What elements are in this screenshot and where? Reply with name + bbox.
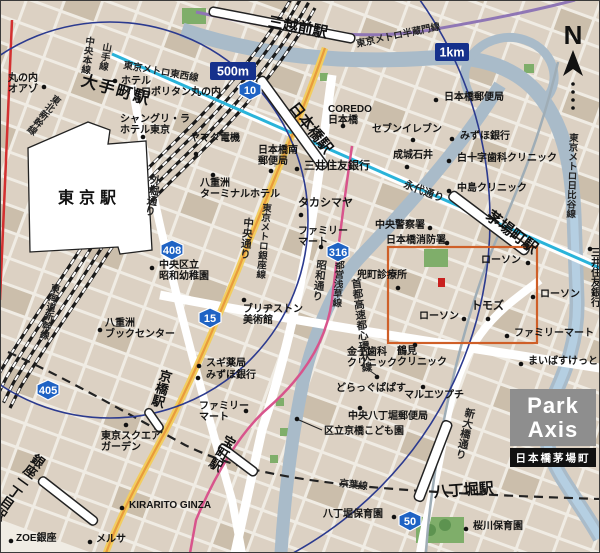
poi-label: スギ薬局 xyxy=(206,356,246,369)
poi-dot xyxy=(505,334,510,339)
poi-dot xyxy=(197,364,202,369)
poi-label: ZOE銀座 xyxy=(16,531,57,544)
park-area xyxy=(320,73,328,81)
poi-dot xyxy=(434,98,439,103)
poi-label: メルサ xyxy=(96,533,126,545)
poi-dot xyxy=(124,423,129,428)
poi-dot xyxy=(194,152,199,157)
poi-dot xyxy=(392,515,397,520)
poi-dot xyxy=(88,540,93,545)
logo-line1: Park xyxy=(527,393,579,418)
logo-caption: 日本橋茅場町 xyxy=(516,452,591,465)
poi-label: 兜町診療所 xyxy=(357,268,407,281)
poi-dot xyxy=(519,362,524,367)
poi-label: 三井住友銀行 xyxy=(304,158,370,172)
park-area xyxy=(270,455,278,463)
poi-label: みずほ銀行 xyxy=(460,129,510,142)
poi-label: 白十字歯科クリニック xyxy=(457,151,557,164)
poi-label: 桜川保育園 xyxy=(473,519,523,532)
poi-label: トモズ xyxy=(471,298,504,312)
north-label: N xyxy=(564,20,583,50)
poi-dot xyxy=(42,85,47,90)
north-arrow-dot xyxy=(571,82,575,86)
poi-dot xyxy=(464,527,469,532)
poi-label: 中央八丁堀郵便局 xyxy=(348,409,428,422)
poi-dot xyxy=(526,261,531,266)
route-shield-number: 316 xyxy=(329,247,347,259)
tokyo-station-building xyxy=(28,122,152,254)
poi-dot xyxy=(486,317,491,322)
property-marker xyxy=(438,278,445,287)
route-shield-number: 15 xyxy=(204,313,216,325)
park-area xyxy=(182,8,206,24)
poi-label: 三井住友銀行 xyxy=(590,247,600,309)
poi-label: みずほ銀行 xyxy=(206,368,256,381)
poi-dot xyxy=(411,138,416,143)
poi-label: 日本橋郵便局 xyxy=(444,90,504,103)
logo-line2: Axis xyxy=(528,417,578,442)
station-label-tokyo: 東京駅 xyxy=(58,188,121,207)
poi-label: ファミリーマート xyxy=(514,327,594,339)
scale-500m-text: 500m xyxy=(217,65,249,79)
poi-dot xyxy=(150,266,155,271)
poi-label: 八丁堀保育園 xyxy=(322,507,383,520)
park-area xyxy=(280,428,288,436)
poi-label: マルエツプチ xyxy=(404,388,464,401)
poi-label: 区立京橋こども園 xyxy=(324,424,404,437)
poi-dot xyxy=(450,137,455,142)
poi-dot xyxy=(196,376,201,381)
poi-dot xyxy=(120,506,125,511)
poi-label: ローソン xyxy=(419,311,459,322)
route-shield-number: 405 xyxy=(39,385,57,397)
poi-label: 中島クリニック xyxy=(457,181,527,194)
poi-label: セブンイレブン xyxy=(372,122,442,135)
poi-dot xyxy=(358,406,363,411)
scale-1km-text: 1km xyxy=(439,46,464,60)
north-arrow-dot xyxy=(571,98,575,102)
poi-label: ローソン xyxy=(481,255,521,266)
map-screenshot: 東京メトロ東西線東京メトロ半蔵門線東京メトロ銀座線都営浅草線東京メトロ日比谷線東… xyxy=(0,0,600,553)
poi-label: 日本橋消防署 xyxy=(386,233,446,246)
poi-dot xyxy=(295,417,300,422)
north-arrow-dot xyxy=(571,90,575,94)
poi-label: ローソン xyxy=(540,289,580,300)
poi-label: 丸の内オアゾ xyxy=(7,71,38,95)
poi-dot xyxy=(447,159,452,164)
poi-dot xyxy=(396,286,401,291)
poi-dot xyxy=(299,213,304,218)
poi-dot xyxy=(405,165,410,170)
poi-dot xyxy=(98,328,103,333)
park-area xyxy=(524,64,534,73)
poi-dot xyxy=(295,167,300,172)
north-arrow-dot xyxy=(571,106,575,110)
poi-label: ヤマダ電機 xyxy=(190,131,240,144)
poi-label: KIRARITO GINZA xyxy=(129,500,211,511)
poi-dot xyxy=(447,189,452,194)
poi-dot xyxy=(9,539,14,544)
poi-dot xyxy=(113,79,118,84)
park-trees xyxy=(439,519,451,531)
park-area xyxy=(424,249,448,267)
park-axis-logo: ParkAxis日本橋茅場町 xyxy=(510,389,596,467)
route-shield-number: 50 xyxy=(404,516,416,528)
poi-dot xyxy=(421,385,426,390)
poi-dot xyxy=(242,298,247,303)
poi-dot xyxy=(428,226,433,231)
route-shield-number: 408 xyxy=(163,245,181,257)
poi-label: タカシマヤ xyxy=(298,196,353,209)
poi-dot xyxy=(375,375,380,380)
area-map-nihonbashi-kayabacho: 東京メトロ東西線東京メトロ半蔵門線東京メトロ銀座線都営浅草線東京メトロ日比谷線東… xyxy=(0,0,600,553)
poi-dot xyxy=(531,295,536,300)
poi-label: 成城石井 xyxy=(393,148,433,161)
poi-dot xyxy=(269,169,274,174)
route-shield-number: 10 xyxy=(244,85,256,97)
poi-label: どらっぐぱぱす xyxy=(336,381,406,394)
poi-label: 中央警察署 xyxy=(375,218,425,231)
poi-dot xyxy=(462,317,467,322)
poi-label: まいばすけっと xyxy=(528,354,598,367)
poi-dot xyxy=(211,173,216,178)
